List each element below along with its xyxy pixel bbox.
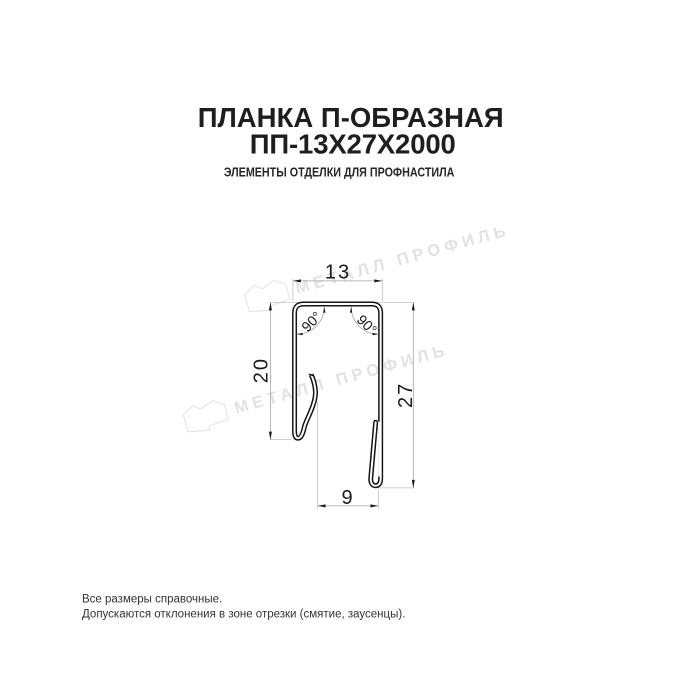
svg-text:13: 13 (325, 261, 351, 283)
svg-text:ЭЛЕМЕНТЫ ОТДЕЛКИ ДЛЯ ПРОФНАСТИ: ЭЛЕМЕНТЫ ОТДЕЛКИ ДЛЯ ПРОФНАСТИЛА (224, 165, 455, 180)
svg-text:Все размеры справочные.: Все размеры справочные. (82, 594, 222, 606)
svg-text:ПП-13Х27Х2000: ПП-13Х27Х2000 (250, 128, 456, 159)
svg-text:20: 20 (250, 357, 272, 383)
svg-text:27: 27 (395, 382, 417, 408)
svg-text:Допускаются отклонения в зоне: Допускаются отклонения в зоне отрезки (с… (82, 609, 405, 621)
svg-text:90°: 90° (299, 309, 325, 335)
svg-text:9: 9 (342, 487, 355, 509)
svg-text:МЕТАЛЛ ПРОФИЛЬ: МЕТАЛЛ ПРОФИЛЬ (294, 221, 512, 298)
